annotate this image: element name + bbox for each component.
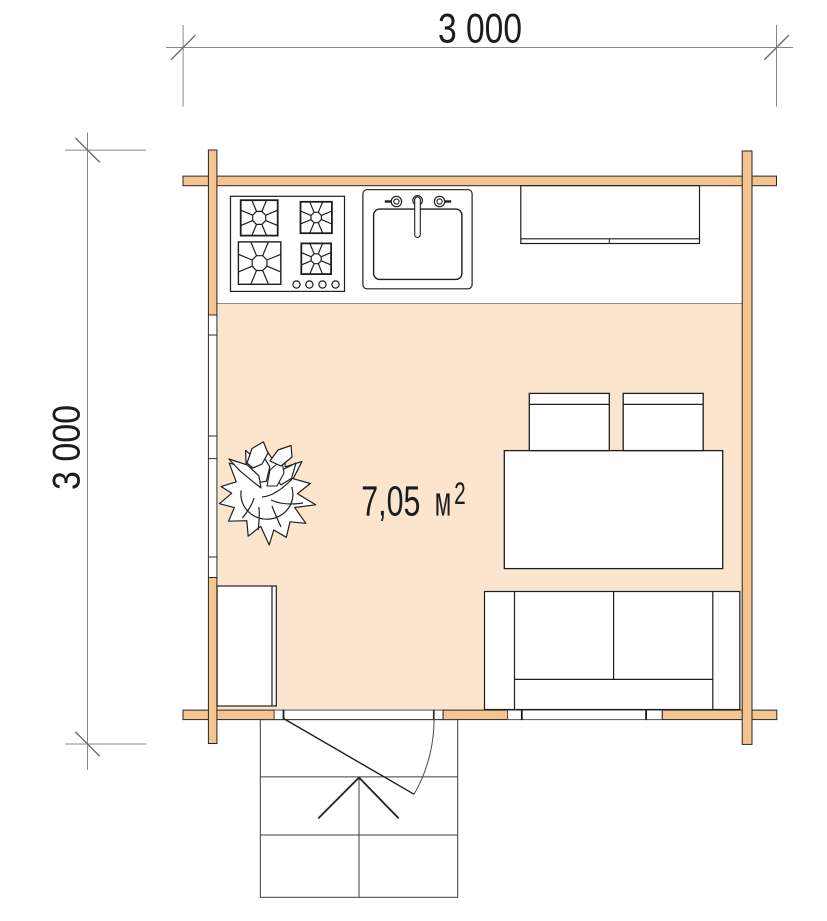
svg-text:7,05: 7,05 xyxy=(361,478,420,525)
svg-text:3 000: 3 000 xyxy=(438,5,522,52)
svg-text:3 000: 3 000 xyxy=(46,405,89,490)
svg-text:м: м xyxy=(435,477,452,524)
svg-text:2: 2 xyxy=(454,475,466,511)
